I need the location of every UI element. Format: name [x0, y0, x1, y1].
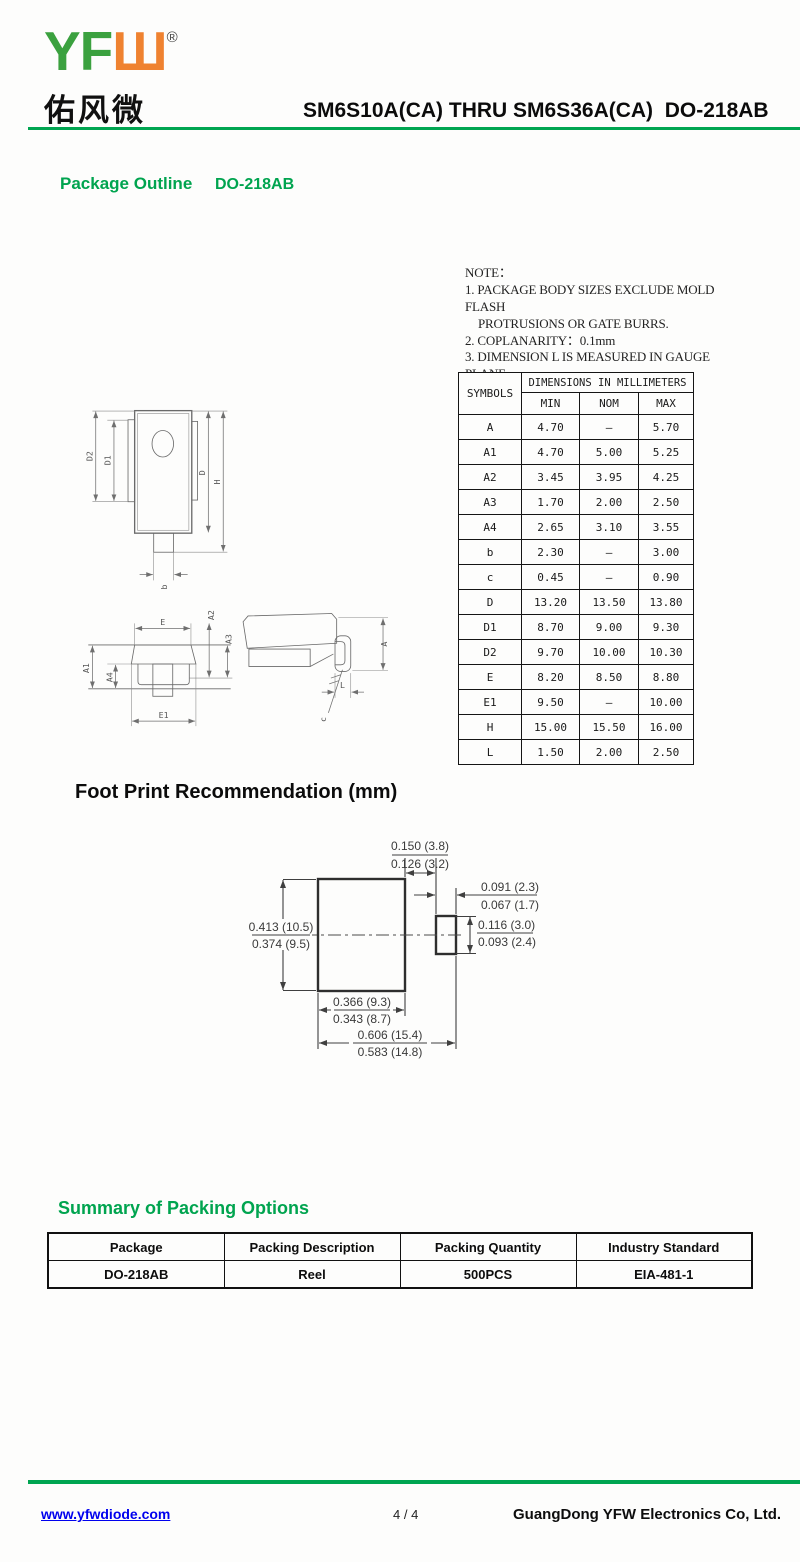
- table-row: c0.45–0.90: [459, 565, 694, 590]
- front-view: E E1 A1 A4 A2 A3: [81, 610, 233, 726]
- packing-package: DO-218AB: [48, 1261, 224, 1289]
- dims-col-nom: NOM: [580, 393, 639, 415]
- dim-label-A: A: [379, 642, 389, 647]
- notes-block: NOTE： 1. PACKAGE BODY SIZES EXCLUDE MOLD…: [465, 265, 725, 383]
- table-row: L1.502.002.50: [459, 740, 694, 765]
- dim-label-A2: A2: [206, 610, 216, 620]
- dim-label-b: b: [159, 584, 169, 589]
- document-title: SM6S10A(CA) THRU SM6S36A(CA) DO-218AB: [303, 99, 769, 123]
- footer-divider: [28, 1480, 800, 1484]
- dim-pad1-height-mm: 0.374 (9.5): [252, 937, 310, 951]
- footprint-drawing: 0.150 (3.8) 0.126 (3.2) 0.091 (2.3) 0.06…: [240, 835, 540, 1065]
- dim-overall-mm: 0.583 (14.8): [358, 1045, 423, 1059]
- dim-pad1-width-in: 0.366 (9.3): [333, 995, 391, 1009]
- packing-table: Package Packing Description Packing Quan…: [47, 1232, 753, 1289]
- logo-yf: YF: [44, 20, 112, 82]
- packing-header-row: Package Packing Description Packing Quan…: [48, 1233, 752, 1261]
- yfw-logo: YFШ® 佑风微: [44, 24, 177, 130]
- datasheet-page: YFШ® 佑风微 SM6S10A(CA) THRU SM6S36A(CA) DO…: [0, 0, 800, 1562]
- top-view: D2 D1 D H b: [84, 411, 227, 590]
- dim-pad2-width-mm: 0.067 (1.7): [481, 898, 539, 912]
- dimensions-table: SYMBOLS DIMENSIONS IN MILLIMETERS MIN NO…: [458, 372, 694, 765]
- table-row: A31.702.002.50: [459, 490, 694, 515]
- dim-label-A1: A1: [81, 663, 91, 673]
- dim-label-E1: E1: [159, 710, 169, 720]
- dim-pad1-width-mm: 0.343 (8.7): [333, 1012, 391, 1026]
- table-row: D18.709.009.30: [459, 615, 694, 640]
- dim-label-A4: A4: [104, 672, 114, 682]
- dim-gap-top-mm: 0.126 (3.2): [391, 857, 449, 871]
- table-row: A4.70–5.70: [459, 415, 694, 440]
- registered-trademark-icon: ®: [167, 29, 177, 46]
- note-line: PROTRUSIONS OR GATE BURRS.: [465, 316, 725, 333]
- section-heading-packing: Summary of Packing Options: [58, 1198, 309, 1219]
- dim-label-D1: D1: [103, 455, 113, 465]
- note-line: 1. PACKAGE BODY SIZES EXCLUDE MOLD FLASH: [465, 282, 725, 316]
- table-row: b2.30–3.00: [459, 540, 694, 565]
- dim-gap-top-in: 0.150 (3.8): [391, 839, 449, 853]
- website-link[interactable]: www.yfwdiode.com: [41, 1506, 170, 1522]
- packing-col-package: Package: [48, 1233, 224, 1261]
- dim-label-D: D: [197, 470, 207, 475]
- header-divider: [28, 127, 800, 130]
- table-row: H15.0015.5016.00: [459, 715, 694, 740]
- packing-standard: EIA-481-1: [576, 1261, 752, 1289]
- dim-label-E: E: [160, 617, 165, 627]
- dims-group-header: DIMENSIONS IN MILLIMETERS: [522, 373, 694, 393]
- packing-description: Reel: [224, 1261, 400, 1289]
- dim-pad2-width-in: 0.091 (2.3): [481, 880, 539, 894]
- page-indicator: 4 / 4: [393, 1507, 418, 1522]
- notes-title: NOTE：: [465, 265, 725, 282]
- section-heading-footprint: Foot Print Recommendation (mm): [75, 781, 397, 804]
- table-row: DO-218AB Reel 500PCS EIA-481-1: [48, 1261, 752, 1289]
- yfw-logo-text: YFШ®: [44, 24, 177, 79]
- package-name: DO-218AB: [215, 176, 294, 194]
- table-row: A23.453.954.25: [459, 465, 694, 490]
- section-heading-package-outline: Package Outline: [60, 174, 192, 194]
- dim-pad2-height-in: 0.116 (3.0): [478, 918, 535, 932]
- dim-label-H: H: [212, 479, 222, 484]
- packing-col-standard: Industry Standard: [576, 1233, 752, 1261]
- logo-chinese-name: 佑风微: [44, 85, 177, 130]
- logo-w-icon: Ш: [112, 20, 166, 82]
- table-row: D29.7010.0010.30: [459, 640, 694, 665]
- dims-corner-header: SYMBOLS: [459, 373, 522, 415]
- table-row: A14.705.005.25: [459, 440, 694, 465]
- table-row: E19.50–10.00: [459, 690, 694, 715]
- side-view: A L c: [243, 613, 389, 721]
- table-row: A42.653.103.55: [459, 515, 694, 540]
- table-row: D13.2013.5013.80: [459, 590, 694, 615]
- dim-label-L: L: [340, 680, 345, 690]
- company-name: GuangDong YFW Electronics Co, Ltd.: [513, 1506, 781, 1523]
- note-line: 2. COPLANARITY：0.1mm: [465, 333, 725, 350]
- dims-col-max: MAX: [639, 393, 694, 415]
- dim-overall-in: 0.606 (15.4): [358, 1028, 423, 1042]
- dim-label-D2: D2: [84, 451, 94, 461]
- packing-col-quantity: Packing Quantity: [400, 1233, 576, 1261]
- dim-label-c: c: [318, 717, 328, 722]
- packing-col-description: Packing Description: [224, 1233, 400, 1261]
- package-outline-drawing: D2 D1 D H b E E: [80, 360, 465, 785]
- packing-quantity: 500PCS: [400, 1261, 576, 1289]
- table-row: E8.208.508.80: [459, 665, 694, 690]
- dim-label-A3: A3: [224, 634, 234, 644]
- dims-col-min: MIN: [522, 393, 580, 415]
- dim-pad1-height-in: 0.413 (10.5): [249, 920, 314, 934]
- dim-pad2-height-mm: 0.093 (2.4): [478, 935, 536, 949]
